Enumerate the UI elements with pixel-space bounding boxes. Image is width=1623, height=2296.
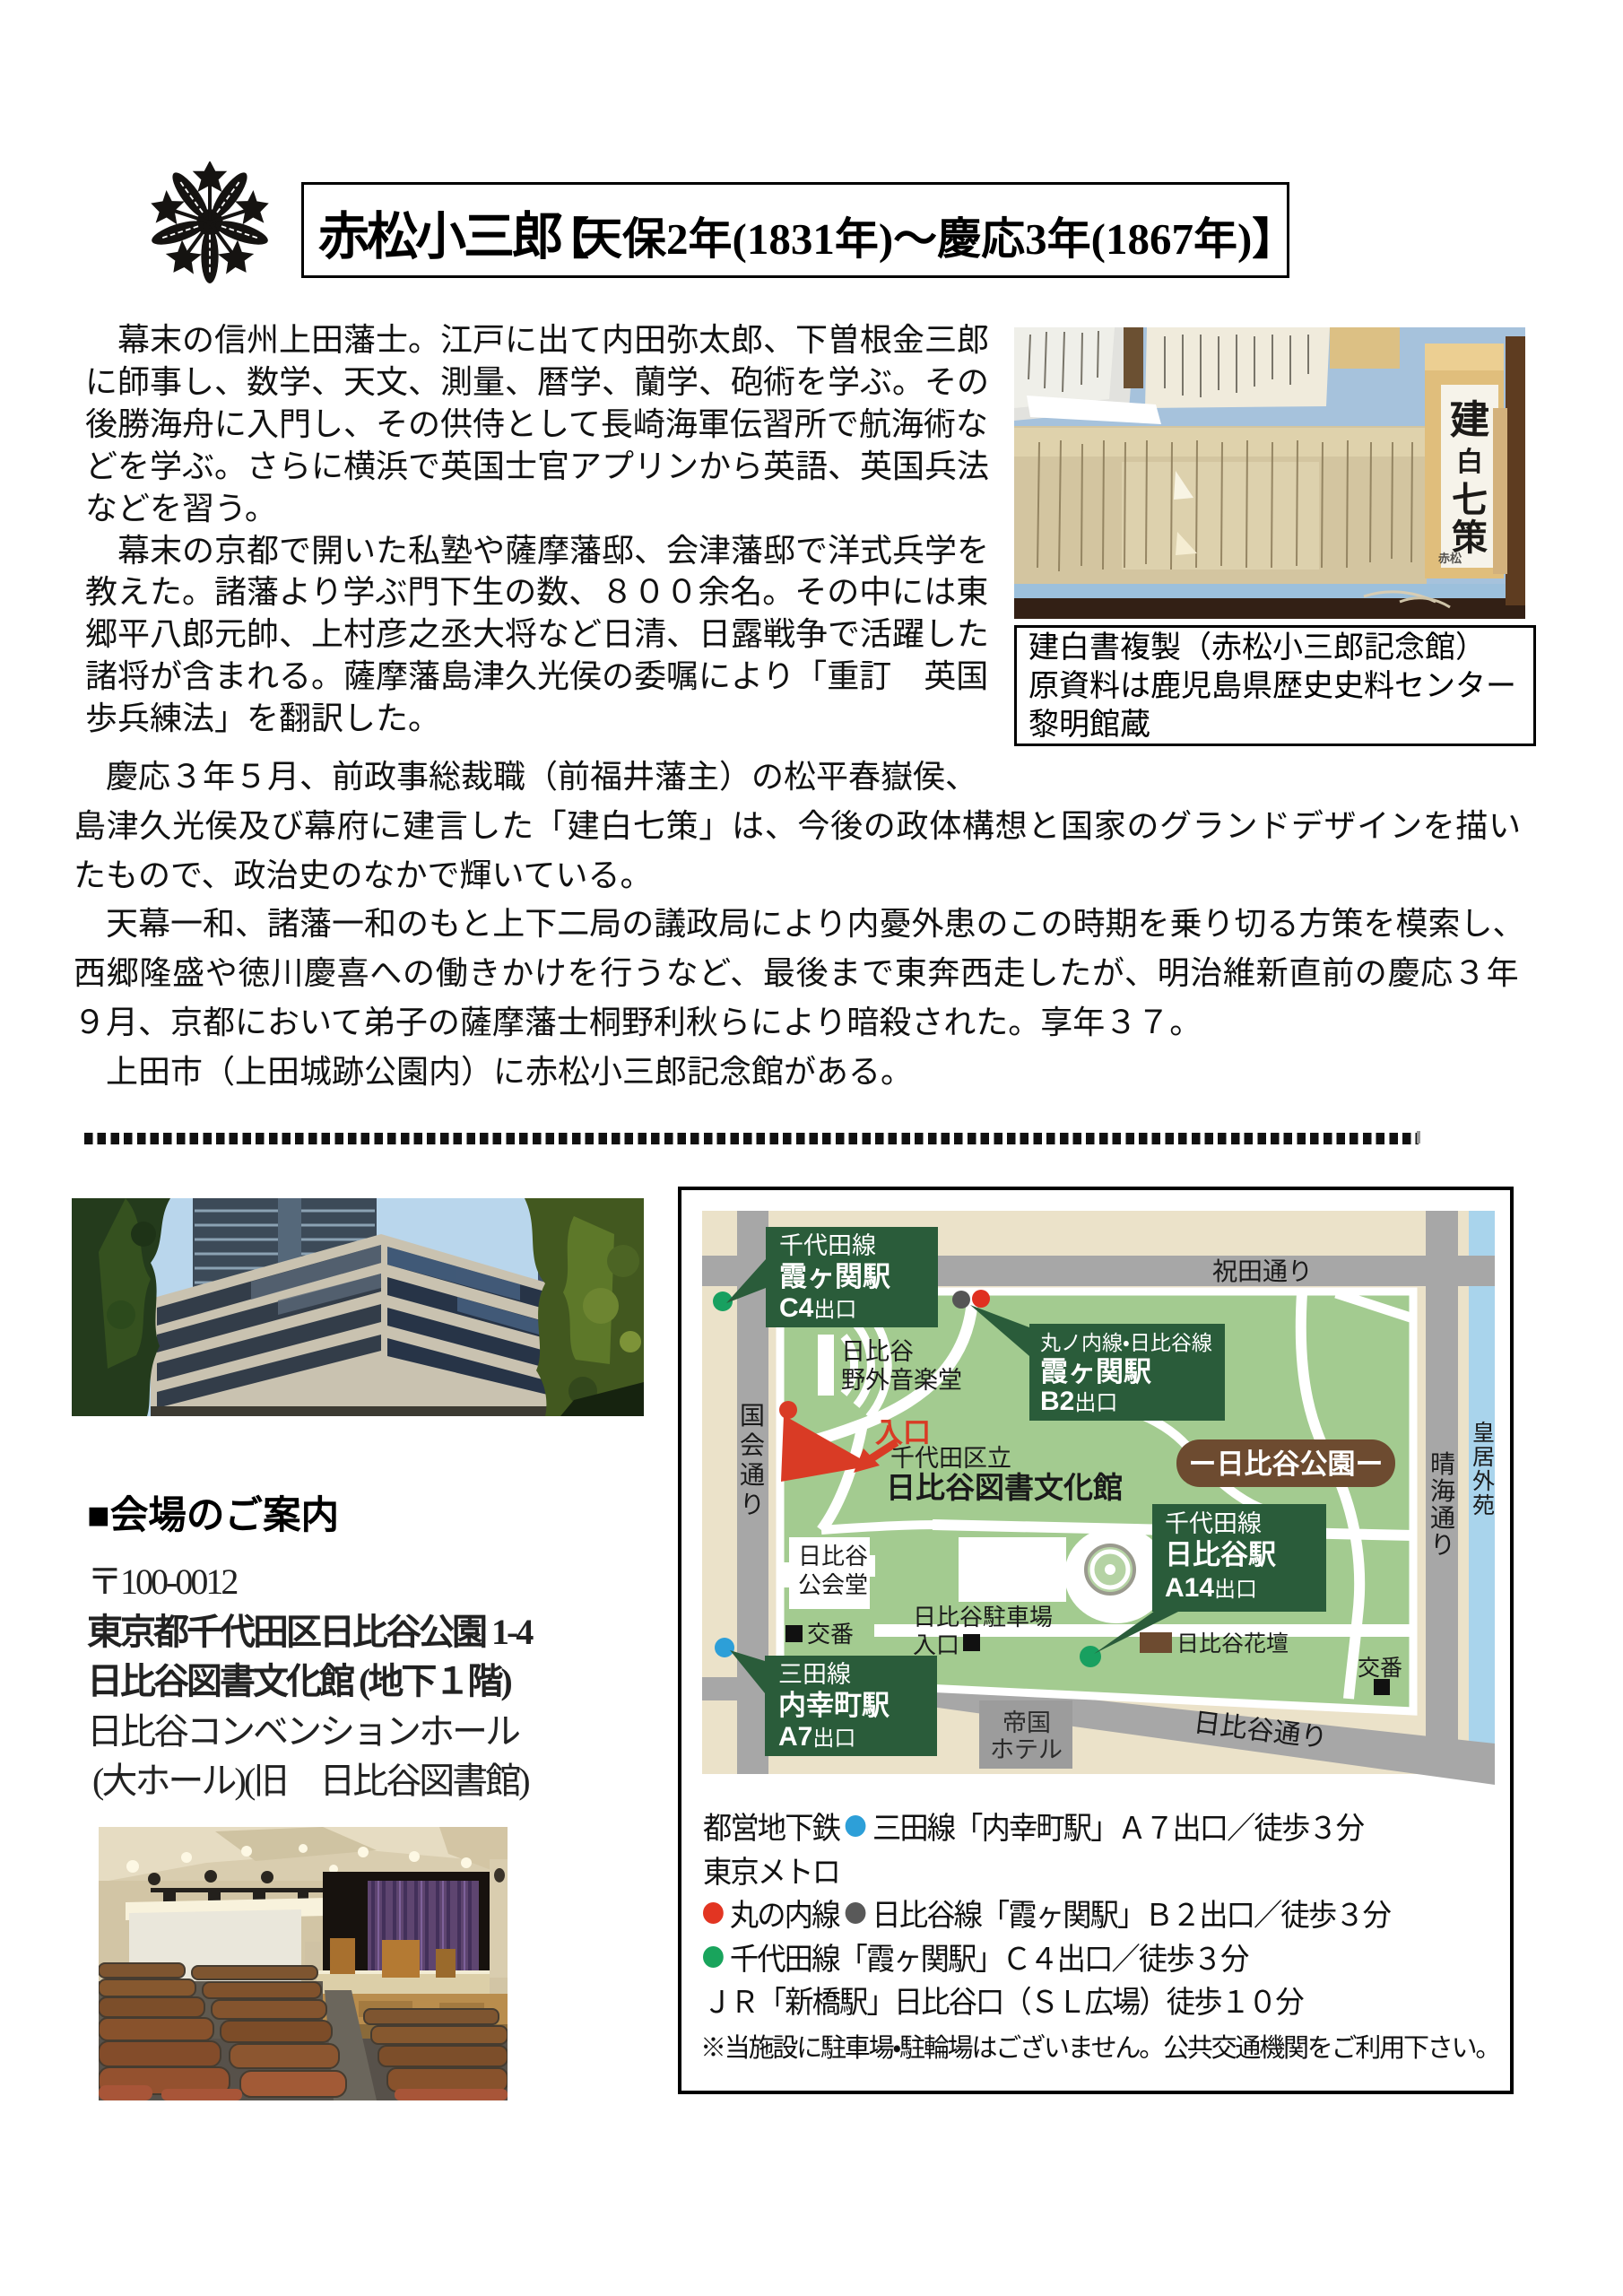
- svg-text:ー日比谷公園ー: ー日比谷公園ー: [1189, 1448, 1384, 1480]
- svg-text:日比谷駐車場: 日比谷駐車場: [913, 1604, 1053, 1631]
- svg-text:帝国: 帝国: [1002, 1709, 1051, 1736]
- svg-text:白: 白: [1456, 448, 1483, 477]
- svg-text:建: 建: [1450, 398, 1489, 442]
- svg-text:日比谷: 日比谷: [798, 1543, 868, 1570]
- svg-text:C4出口: C4出口: [779, 1293, 856, 1323]
- svg-text:晴海通り: 晴海通り: [1430, 1450, 1455, 1559]
- svg-text:A7出口: A7出口: [778, 1722, 855, 1752]
- svg-text:日比谷図書文化館: 日比谷図書文化館: [886, 1471, 1123, 1504]
- svg-text:入口: 入口: [913, 1631, 959, 1658]
- svg-text:赤松: 赤松: [1437, 552, 1462, 565]
- svg-text:内幸町駅: 内幸町駅: [778, 1690, 890, 1721]
- svg-text:日比谷駅: 日比谷駅: [1165, 1539, 1276, 1570]
- svg-text:A14出口: A14出口: [1165, 1573, 1257, 1603]
- svg-text:霞ヶ関駅: 霞ヶ関駅: [1040, 1356, 1151, 1387]
- svg-text:B2出口: B2出口: [1040, 1387, 1117, 1416]
- svg-text:七: 七: [1452, 480, 1488, 520]
- svg-text:千代田線: 千代田線: [1165, 1510, 1262, 1537]
- svg-text:日比谷花壇: 日比谷花壇: [1176, 1631, 1289, 1657]
- svg-text:丸ノ内線・日比谷線: 丸ノ内線・日比谷線: [1040, 1331, 1212, 1354]
- svg-text:交番: 交番: [807, 1621, 854, 1648]
- svg-text:千代田線: 千代田線: [779, 1232, 876, 1259]
- svg-text:皇居外苑: 皇居外苑: [1472, 1421, 1495, 1518]
- svg-text:ホテル: ホテル: [990, 1736, 1063, 1763]
- svg-text:三田線: 三田線: [778, 1661, 851, 1688]
- svg-text:祝田通り: 祝田通り: [1212, 1257, 1313, 1285]
- svg-text:野外音楽堂: 野外音楽堂: [841, 1367, 962, 1394]
- svg-text:交番: 交番: [1358, 1656, 1402, 1681]
- svg-text:公会堂: 公会堂: [798, 1571, 868, 1598]
- svg-text:日比谷: 日比谷: [841, 1338, 914, 1365]
- svg-text:霞ヶ関駅: 霞ヶ関駅: [779, 1261, 890, 1292]
- svg-text:入口: 入口: [875, 1417, 931, 1448]
- svg-text:千代田区立: 千代田区立: [890, 1445, 1011, 1472]
